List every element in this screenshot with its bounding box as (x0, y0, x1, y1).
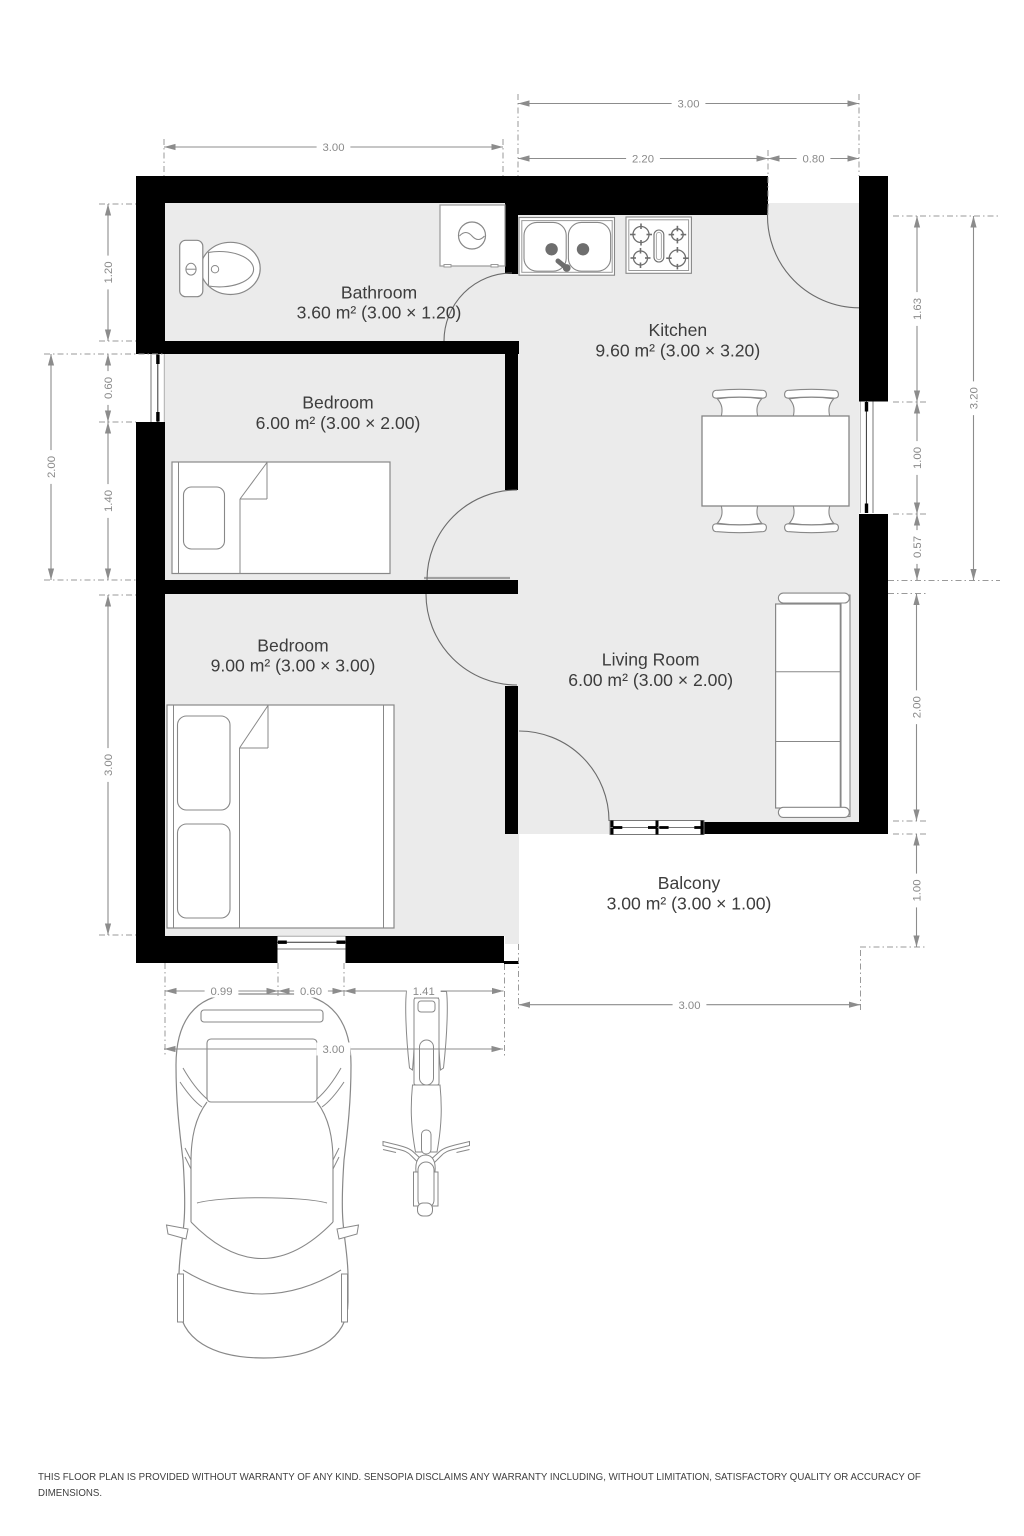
svg-text:1.00: 1.00 (912, 880, 924, 902)
svg-text:Bedroom: Bedroom (302, 393, 373, 413)
svg-text:3.00: 3.00 (678, 99, 700, 111)
svg-text:1.40: 1.40 (103, 490, 115, 512)
svg-text:Kitchen: Kitchen (648, 320, 707, 340)
svg-text:0.99: 0.99 (211, 986, 233, 998)
svg-text:3.00: 3.00 (679, 1000, 701, 1012)
svg-text:1.63: 1.63 (912, 298, 924, 320)
svg-text:3.00: 3.00 (103, 754, 115, 776)
svg-text:0.80: 0.80 (803, 154, 825, 166)
svg-text:2.00: 2.00 (46, 456, 58, 478)
svg-text:Bathroom: Bathroom (341, 282, 417, 302)
svg-text:9.00 m² (3.00 × 3.00): 9.00 m² (3.00 × 3.00) (211, 656, 376, 676)
svg-text:1.20: 1.20 (103, 262, 115, 284)
svg-text:0.57: 0.57 (912, 536, 924, 558)
svg-text:Balcony: Balcony (658, 873, 721, 893)
svg-text:3.00: 3.00 (323, 142, 345, 154)
svg-text:6.00 m² (3.00 × 2.00): 6.00 m² (3.00 × 2.00) (256, 413, 421, 433)
svg-text:3.00 m² (3.00 × 1.00): 3.00 m² (3.00 × 1.00) (607, 893, 772, 913)
svg-text:0.60: 0.60 (300, 986, 322, 998)
svg-text:2.00: 2.00 (912, 696, 924, 718)
svg-text:Bedroom: Bedroom (257, 635, 328, 655)
svg-text:Living Room: Living Room (602, 650, 700, 670)
svg-text:0.60: 0.60 (103, 377, 115, 399)
svg-text:DIMENSIONS.: DIMENSIONS. (38, 1488, 102, 1499)
svg-text:2.20: 2.20 (632, 154, 654, 166)
svg-text:6.00 m² (3.00 × 2.00): 6.00 m² (3.00 × 2.00) (568, 670, 733, 690)
svg-text:THIS FLOOR PLAN IS PROVIDED WI: THIS FLOOR PLAN IS PROVIDED WITHOUT WARR… (38, 1472, 921, 1483)
svg-text:3.20: 3.20 (969, 387, 981, 409)
svg-text:1.41: 1.41 (413, 986, 435, 998)
svg-text:1.00: 1.00 (912, 447, 924, 469)
svg-text:3.00: 3.00 (323, 1044, 345, 1056)
svg-text:9.60 m² (3.00 × 3.20): 9.60 m² (3.00 × 3.20) (595, 340, 760, 360)
svg-text:3.60 m² (3.00 × 1.20): 3.60 m² (3.00 × 1.20) (297, 303, 462, 323)
